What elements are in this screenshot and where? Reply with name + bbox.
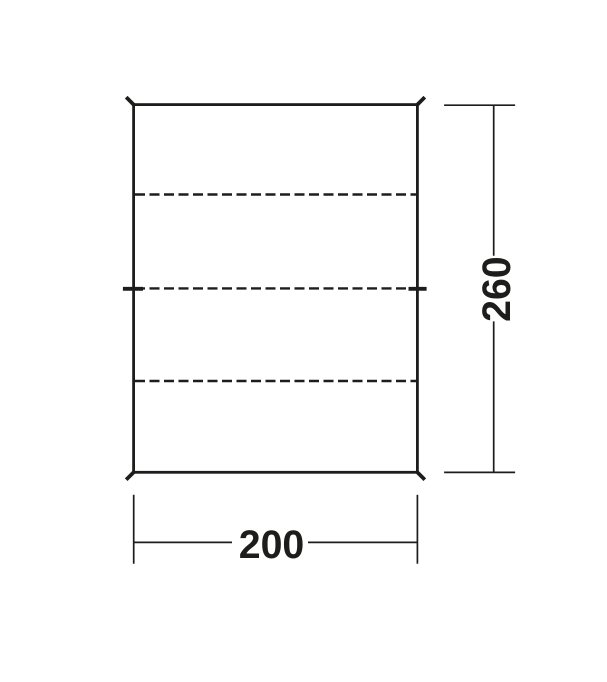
svg-text:200: 200 [239,523,305,567]
svg-text:260: 260 [475,256,519,322]
